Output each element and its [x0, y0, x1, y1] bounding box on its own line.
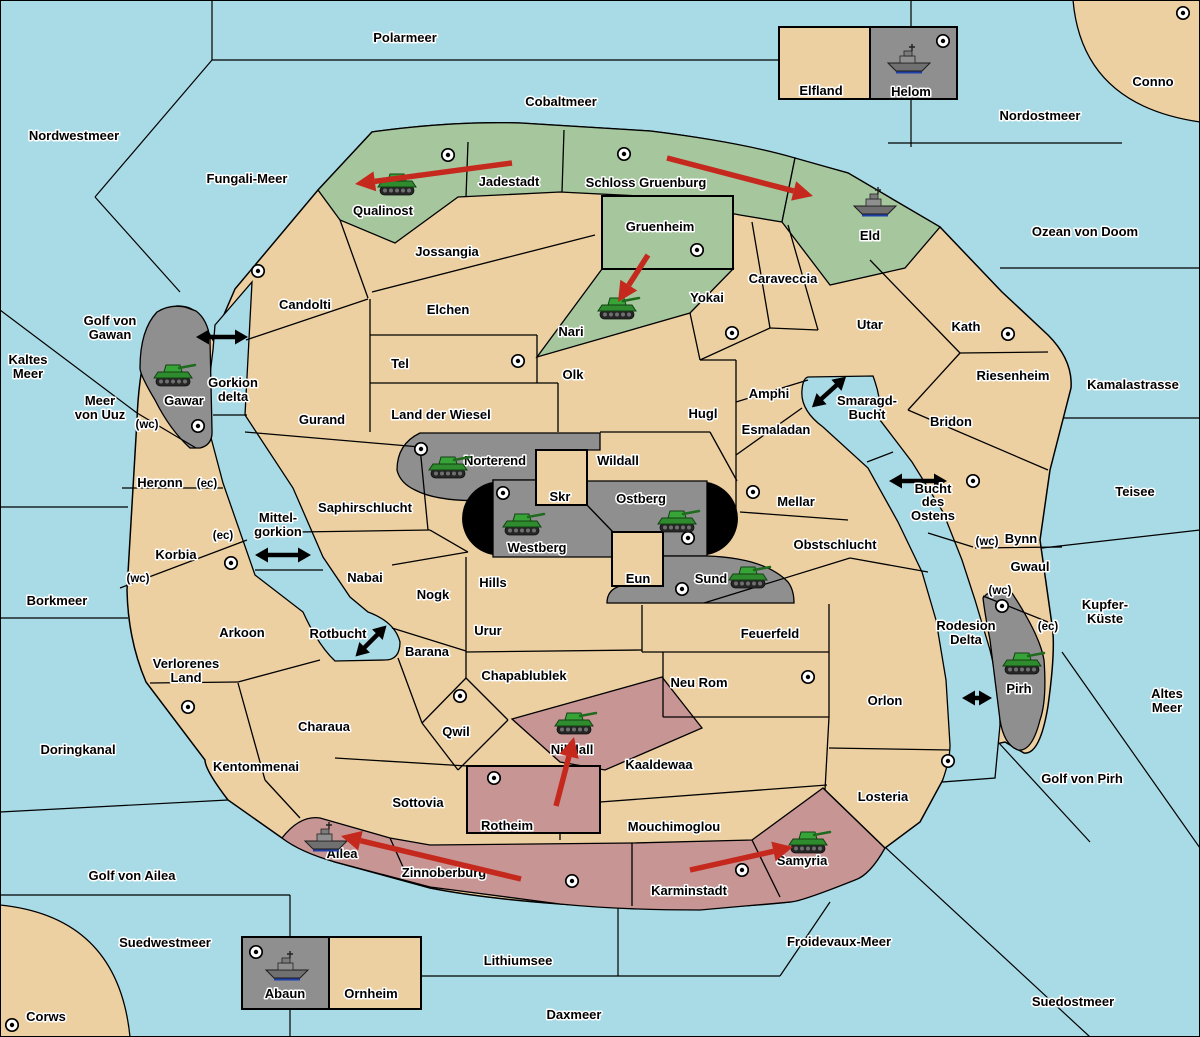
svg-text:Kupfer-: Kupfer-	[1082, 597, 1128, 612]
territory-saphirschlucht[interactable]: Saphirschlucht	[318, 500, 413, 515]
svg-text:Corws: Corws	[26, 1009, 66, 1024]
sea-borkmeer[interactable]: Borkmeer	[27, 593, 88, 608]
svg-text:Gawar: Gawar	[164, 393, 204, 408]
sea-polarmeer[interactable]: Polarmeer	[373, 30, 437, 45]
supply-center-icon	[512, 355, 524, 367]
svg-text:Lithiumsee: Lithiumsee	[484, 953, 553, 968]
territory-jossangia[interactable]: Jossangia	[415, 244, 479, 259]
svg-text:Ostberg: Ostberg	[616, 491, 666, 506]
territory-kath[interactable]: Kath	[952, 319, 981, 334]
svg-text:Feuerfeld: Feuerfeld	[741, 626, 800, 641]
svg-text:Nordostmeer: Nordostmeer	[1000, 108, 1081, 123]
svg-text:(wc): (wc)	[976, 536, 999, 548]
territory-bynn[interactable]: Bynn	[1005, 531, 1038, 546]
svg-text:Land der Wiesel: Land der Wiesel	[391, 407, 491, 422]
svg-text:Qwil: Qwil	[442, 724, 469, 739]
territory-helom[interactable]: Helom	[891, 84, 931, 99]
svg-text:Nogk: Nogk	[417, 587, 450, 602]
svg-text:Golf von Pirh: Golf von Pirh	[1041, 771, 1123, 786]
sea-suedwestmeer[interactable]: Suedwestmeer	[119, 935, 211, 950]
territory-caraveccia[interactable]: Caraveccia	[749, 271, 818, 286]
coast-label-ec: (ec)	[197, 478, 218, 490]
svg-text:Olk: Olk	[563, 367, 585, 382]
territory-corws[interactable]: Corws	[26, 1009, 66, 1024]
sea-nordwestmeer[interactable]: Nordwestmeer	[29, 128, 119, 143]
sea-rotbucht[interactable]: Rotbucht	[309, 626, 367, 641]
sea-doringkanal[interactable]: Doringkanal	[40, 742, 115, 757]
territory-sund[interactable]: Sund	[695, 571, 728, 586]
svg-text:Ornheim: Ornheim	[344, 986, 397, 1001]
territory-korbia[interactable]: Korbia	[155, 547, 197, 562]
supply-center-icon	[182, 701, 194, 713]
svg-text:Ozean von Doom: Ozean von Doom	[1032, 224, 1138, 239]
svg-text:von Uuz: von Uuz	[75, 407, 126, 422]
sea-altes-meer[interactable]: AltesMeer	[1151, 686, 1183, 715]
svg-text:Amphi: Amphi	[749, 386, 789, 401]
territory-gwaul[interactable]: Gwaul	[1010, 559, 1049, 574]
svg-text:Sund: Sund	[695, 571, 728, 586]
svg-text:Borkmeer: Borkmeer	[27, 593, 88, 608]
svg-text:Losteria: Losteria	[858, 789, 909, 804]
svg-text:Mouchimoglou: Mouchimoglou	[628, 819, 720, 834]
svg-text:Rotbucht: Rotbucht	[309, 626, 367, 641]
svg-text:Charaua: Charaua	[298, 719, 351, 734]
svg-text:Samyria: Samyria	[777, 853, 828, 868]
supply-center-icon	[1002, 328, 1014, 340]
territory-elfland[interactable]: Elfland	[799, 83, 842, 98]
territory-gurand[interactable]: Gurand	[299, 412, 345, 427]
territory-schloss-gruenburg[interactable]: Schloss Gruenburg	[586, 175, 707, 190]
territory-westberg[interactable]: Westberg	[508, 540, 567, 555]
supply-center-icon	[442, 149, 454, 161]
territory-abaun[interactable]: Abaun	[265, 986, 306, 1001]
svg-text:Orlon: Orlon	[868, 693, 903, 708]
coast-label-wc: (wc)	[127, 573, 150, 585]
svg-text:Golf von Ailea: Golf von Ailea	[89, 868, 177, 883]
svg-text:Obstschlucht: Obstschlucht	[793, 537, 877, 552]
territory-mouchimoglou[interactable]: Mouchimoglou	[628, 819, 720, 834]
supply-center-icon	[488, 772, 500, 784]
svg-text:(ec): (ec)	[213, 530, 234, 542]
svg-text:(wc): (wc)	[136, 419, 159, 431]
svg-text:Gwaul: Gwaul	[1010, 559, 1049, 574]
svg-text:Korbia: Korbia	[155, 547, 197, 562]
svg-text:Bucht: Bucht	[849, 407, 887, 422]
territory-tel[interactable]: Tel	[391, 356, 409, 371]
sea-suedostmeer[interactable]: Suedostmeer	[1032, 994, 1114, 1009]
territory-nari[interactable]: Nari	[558, 324, 583, 339]
svg-text:Westberg: Westberg	[508, 540, 567, 555]
svg-text:Gruenheim: Gruenheim	[626, 219, 695, 234]
svg-text:(wc): (wc)	[989, 585, 1012, 597]
svg-text:Pirh: Pirh	[1006, 681, 1031, 696]
svg-text:Bridon: Bridon	[930, 414, 972, 429]
territory-obstschlucht[interactable]: Obstschlucht	[793, 537, 877, 552]
supply-center-icon	[566, 875, 578, 887]
svg-text:Gorkion: Gorkion	[208, 375, 258, 390]
supply-center-icon	[250, 946, 262, 958]
svg-text:Wildall: Wildall	[597, 453, 639, 468]
territory-elchen[interactable]: Elchen	[427, 302, 470, 317]
svg-text:Verlorenes: Verlorenes	[153, 656, 220, 671]
svg-text:Skr: Skr	[550, 489, 571, 504]
svg-text:gorkion: gorkion	[254, 524, 302, 539]
svg-text:Doringkanal: Doringkanal	[40, 742, 115, 757]
territory-losteria[interactable]: Losteria	[858, 789, 909, 804]
territory-barana[interactable]: Barana	[405, 644, 450, 659]
svg-text:Candolti: Candolti	[279, 297, 331, 312]
svg-text:Land: Land	[170, 670, 201, 685]
territory-wildall[interactable]: Wildall	[597, 453, 639, 468]
territory-hugl[interactable]: Hugl	[689, 406, 718, 421]
coast-label-wc: (wc)	[136, 419, 159, 431]
sea-kamalastrasse[interactable]: Kamalastrasse	[1087, 377, 1179, 392]
supply-center-icon	[6, 1019, 18, 1031]
territory-sottovia[interactable]: Sottovia	[392, 795, 444, 810]
sea-fungali-meer[interactable]: Fungali-Meer	[207, 171, 288, 186]
territory-conno[interactable]: Conno	[1132, 74, 1173, 89]
territory-skr[interactable]: Skr	[550, 489, 571, 504]
territory-rotheim[interactable]: Rotheim	[481, 818, 533, 833]
svg-text:Rotheim: Rotheim	[481, 818, 533, 833]
supply-center-icon	[802, 671, 814, 683]
svg-text:Hills: Hills	[479, 575, 506, 590]
svg-text:Jossangia: Jossangia	[415, 244, 479, 259]
svg-text:Heronn: Heronn	[137, 475, 183, 490]
territory-eun[interactable]: Eun	[626, 571, 651, 586]
territory-bridon[interactable]: Bridon	[930, 414, 972, 429]
supply-center-icon	[415, 443, 427, 455]
svg-text:Suedwestmeer: Suedwestmeer	[119, 935, 211, 950]
territory-land-der-wiesel[interactable]: Land der Wiesel	[391, 407, 491, 422]
sea-cobaltmeer[interactable]: Cobaltmeer	[525, 94, 597, 109]
svg-text:Gawan: Gawan	[89, 327, 132, 342]
territory-chapablublek[interactable]: Chapablublek	[481, 668, 567, 683]
svg-text:Mellar: Mellar	[777, 494, 815, 509]
svg-text:Chapablublek: Chapablublek	[481, 668, 567, 683]
territory-pirh[interactable]: Pirh	[1006, 681, 1031, 696]
supply-center-icon	[192, 420, 204, 432]
supply-center-icon	[497, 487, 509, 499]
svg-text:Abaun: Abaun	[265, 986, 306, 1001]
svg-text:Suedostmeer: Suedostmeer	[1032, 994, 1114, 1009]
svg-text:Nabai: Nabai	[347, 570, 382, 585]
svg-text:Fungali-Meer: Fungali-Meer	[207, 171, 288, 186]
svg-text:Qualinost: Qualinost	[353, 203, 414, 218]
supply-center-icon	[691, 244, 703, 256]
supply-center-icon	[454, 690, 466, 702]
supply-center-icon	[996, 600, 1008, 612]
territory-esmaladan[interactable]: Esmaladan	[742, 422, 811, 437]
supply-center-icon	[942, 755, 954, 767]
svg-text:Froidevaux-Meer: Froidevaux-Meer	[787, 934, 891, 949]
svg-text:(wc): (wc)	[127, 573, 150, 585]
territory-neu-rom[interactable]: Neu Rom	[670, 675, 727, 690]
sea-kaltes-meer[interactable]: KaltesMeer	[8, 352, 47, 381]
territory-yokai[interactable]: Yokai	[690, 290, 724, 305]
supply-center-icon	[967, 475, 979, 487]
supply-center-icon	[726, 327, 738, 339]
supply-center-icon	[225, 557, 237, 569]
territory-norterend[interactable]: Norterend	[464, 453, 526, 468]
coast-label-ec: (ec)	[213, 530, 234, 542]
territory-gawar[interactable]: Gawar	[164, 393, 204, 408]
svg-text:Gurand: Gurand	[299, 412, 345, 427]
territory-qualinost[interactable]: Qualinost	[353, 203, 414, 218]
sea-kupfer-k-ste[interactable]: Kupfer-Küste	[1082, 597, 1128, 626]
svg-text:Hugl: Hugl	[689, 406, 718, 421]
svg-text:Kaaldewaa: Kaaldewaa	[625, 757, 693, 772]
territory-heronn[interactable]: Heronn	[137, 475, 183, 490]
svg-text:Arkoon: Arkoon	[219, 625, 265, 640]
svg-text:Bynn: Bynn	[1005, 531, 1038, 546]
sea-golf-von-pirh[interactable]: Golf von Pirh	[1041, 771, 1123, 786]
svg-text:Caraveccia: Caraveccia	[749, 271, 818, 286]
svg-text:Utar: Utar	[857, 317, 883, 332]
svg-text:Schloss Gruenburg: Schloss Gruenburg	[586, 175, 707, 190]
svg-text:Elchen: Elchen	[427, 302, 470, 317]
territory-gruenheim[interactable]: Gruenheim	[626, 219, 695, 234]
sea-lithiumsee[interactable]: Lithiumsee	[484, 953, 553, 968]
sea-ozean-von-doom[interactable]: Ozean von Doom	[1032, 224, 1138, 239]
svg-text:Yokai: Yokai	[690, 290, 724, 305]
supply-center-icon	[682, 532, 694, 544]
svg-text:Barana: Barana	[405, 644, 450, 659]
svg-text:Meer: Meer	[85, 393, 115, 408]
svg-text:Golf von: Golf von	[84, 313, 137, 328]
svg-text:des: des	[922, 494, 944, 509]
sea-daxmeer[interactable]: Daxmeer	[547, 1007, 602, 1022]
svg-text:Kath: Kath	[952, 319, 981, 334]
svg-text:Tel: Tel	[391, 356, 409, 371]
supply-center-icon	[618, 148, 630, 160]
supply-center-icon	[736, 864, 748, 876]
sea-nordostmeer[interactable]: Nordostmeer	[1000, 108, 1081, 123]
svg-text:Daxmeer: Daxmeer	[547, 1007, 602, 1022]
svg-text:Kaltes: Kaltes	[8, 352, 47, 367]
svg-text:(ec): (ec)	[197, 478, 218, 490]
sea-teisee[interactable]: Teisee	[1115, 484, 1155, 499]
territory-mellar[interactable]: Mellar	[777, 494, 815, 509]
supply-center-icon	[937, 35, 949, 47]
svg-text:Cobaltmeer: Cobaltmeer	[525, 94, 597, 109]
sea-golf-von-gawan[interactable]: Golf vonGawan	[84, 313, 137, 342]
territory-arkoon[interactable]: Arkoon	[219, 625, 265, 640]
territory-hills[interactable]: Hills	[479, 575, 506, 590]
supply-center-icon	[676, 583, 688, 595]
svg-text:Sottovia: Sottovia	[392, 795, 444, 810]
supply-center-icon	[747, 486, 759, 498]
territory-kentommenai[interactable]: Kentommenai	[213, 759, 299, 774]
game-map: PolarmeerCobaltmeerNordwestmeerFungali-M…	[0, 0, 1200, 1037]
svg-text:Helom: Helom	[891, 84, 931, 99]
territory-feuerfeld[interactable]: Feuerfeld	[741, 626, 800, 641]
territory-nogk[interactable]: Nogk	[417, 587, 450, 602]
coast-label-wc: (wc)	[976, 536, 999, 548]
svg-text:Esmaladan: Esmaladan	[742, 422, 811, 437]
territory-urur[interactable]: Urur	[474, 623, 501, 638]
territory-qwil[interactable]: Qwil	[442, 724, 469, 739]
svg-text:Kentommenai: Kentommenai	[213, 759, 299, 774]
svg-text:Polarmeer: Polarmeer	[373, 30, 437, 45]
sea-mittel-gorkion[interactable]: Mittel-gorkion	[254, 510, 302, 539]
territory-samyria[interactable]: Samyria	[777, 853, 828, 868]
sea-froidevaux-meer[interactable]: Froidevaux-Meer	[787, 934, 891, 949]
map-svg: PolarmeerCobaltmeerNordwestmeerFungali-M…	[0, 0, 1200, 1037]
svg-text:Ostens: Ostens	[911, 508, 955, 523]
svg-text:Meer: Meer	[13, 366, 43, 381]
svg-text:Rodesion: Rodesion	[936, 618, 995, 633]
territory-utar[interactable]: Utar	[857, 317, 883, 332]
svg-text:Neu Rom: Neu Rom	[670, 675, 727, 690]
svg-text:Smaragd-: Smaragd-	[837, 393, 897, 408]
svg-text:Altes: Altes	[1151, 686, 1183, 701]
sea-golf-von-ailea[interactable]: Golf von Ailea	[89, 868, 177, 883]
svg-text:Delta: Delta	[950, 632, 983, 647]
coast-label-wc: (wc)	[989, 585, 1012, 597]
svg-text:Nordwestmeer: Nordwestmeer	[29, 128, 119, 143]
svg-text:Jadestadt: Jadestadt	[479, 174, 540, 189]
supply-center-icon	[1177, 7, 1189, 19]
territory-jadestadt[interactable]: Jadestadt	[479, 174, 540, 189]
territory-nabai[interactable]: Nabai	[347, 570, 382, 585]
territory-eld[interactable]: Eld	[860, 228, 880, 243]
svg-text:Teisee: Teisee	[1115, 484, 1155, 499]
svg-text:Küste: Küste	[1087, 611, 1123, 626]
svg-text:Saphirschlucht: Saphirschlucht	[318, 500, 413, 515]
svg-text:Eun: Eun	[626, 571, 651, 586]
territory-riesenheim[interactable]: Riesenheim	[977, 368, 1050, 383]
svg-text:Kamalastrasse: Kamalastrasse	[1087, 377, 1179, 392]
svg-text:Conno: Conno	[1132, 74, 1173, 89]
territory-ostberg[interactable]: Ostberg	[616, 491, 666, 506]
svg-text:Mittel-: Mittel-	[259, 510, 297, 525]
svg-text:Nari: Nari	[558, 324, 583, 339]
svg-text:Riesenheim: Riesenheim	[977, 368, 1050, 383]
coast-label-ec: (ec)	[1038, 621, 1059, 633]
territory-amphi[interactable]: Amphi	[749, 386, 789, 401]
svg-text:Norterend: Norterend	[464, 453, 526, 468]
svg-text:delta: delta	[218, 389, 249, 404]
territory-karminstadt[interactable]: Karminstadt	[651, 883, 728, 898]
territory-ornheim[interactable]: Ornheim	[344, 986, 397, 1001]
territory-orlon[interactable]: Orlon	[868, 693, 903, 708]
territory-candolti[interactable]: Candolti	[279, 297, 331, 312]
territory-charaua[interactable]: Charaua	[298, 719, 351, 734]
territory-kaaldewaa[interactable]: Kaaldewaa	[625, 757, 693, 772]
svg-text:Urur: Urur	[474, 623, 501, 638]
territory-olk[interactable]: Olk	[563, 367, 585, 382]
svg-text:Meer: Meer	[1152, 700, 1182, 715]
svg-text:(ec): (ec)	[1038, 621, 1059, 633]
supply-center-icon	[252, 265, 264, 277]
svg-text:Eld: Eld	[860, 228, 880, 243]
svg-text:Elfland: Elfland	[799, 83, 842, 98]
svg-text:Karminstadt: Karminstadt	[651, 883, 728, 898]
